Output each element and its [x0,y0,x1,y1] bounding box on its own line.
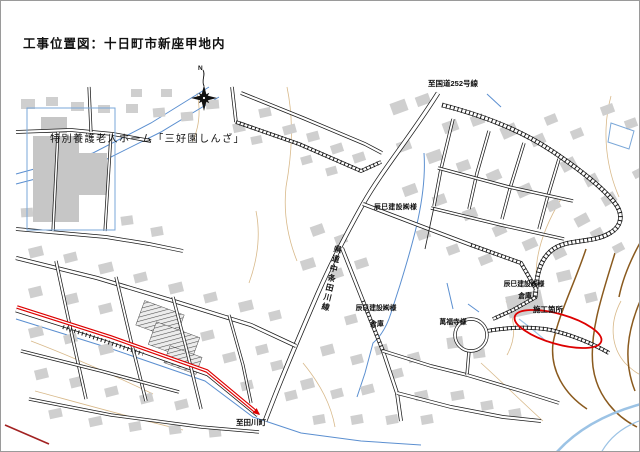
label-construction-site: 施工箇所 [533,304,563,314]
building [352,151,366,163]
building [330,388,344,400]
stream-line [487,94,501,107]
building [450,390,464,401]
road-hatch-ticks [487,328,609,353]
north-label: N [198,65,203,72]
building [268,310,282,322]
building [325,166,338,177]
building [385,414,398,425]
pref-road-char: 線 [321,301,331,313]
building [522,237,539,252]
label-route-252: 至国道252号線 [428,78,479,88]
building [600,103,615,116]
building [330,142,344,154]
building [282,123,297,135]
building [478,253,493,266]
building [556,269,572,282]
building [28,245,44,258]
hatched-buildings [136,301,202,375]
building [168,281,184,294]
stream-line [468,304,479,312]
building [63,252,78,264]
building [310,223,326,237]
road-casing [29,399,259,432]
building [46,97,58,106]
road-casing [442,105,620,298]
building [402,183,419,197]
label-nursing-home: 特別養護老人ホーム「三好園しんざ」 [50,132,245,145]
building [426,149,444,164]
building [98,342,114,355]
compass-center [203,97,205,99]
label-tatsumi-kensetsu: 辰巳建設㈱様 [374,202,417,211]
building [354,257,369,270]
road-hatch-ticks [442,105,620,298]
label-tatsumi-warehouse1-line1: 辰巳建設㈱様 [356,303,397,312]
river-line [556,404,640,452]
label-manpukuji: 萬福寺様 [439,317,466,326]
building [570,127,584,140]
building [320,343,335,356]
label-to-tagawa: 至田川町 [236,418,266,427]
stream-line [447,283,453,309]
building [300,257,316,271]
building [258,107,272,118]
building [350,354,364,366]
building [128,421,141,432]
building [480,400,493,411]
building [573,212,590,227]
building [174,399,189,411]
building [222,352,237,364]
building [250,135,262,145]
road-casing [342,248,401,421]
building [300,155,313,166]
map-canvas: 工事位置図：十日町市新座甲地内 N 至国道252号線 特別養護老人ホーム「三好園… [1,1,640,452]
building [98,261,114,274]
building [255,344,269,356]
building [300,377,315,390]
building [238,299,254,312]
building [312,414,325,425]
building [284,390,298,402]
building [446,243,460,256]
road-fill [502,143,524,219]
label-tatsumi-warehouse2-line1: 辰巳建設㈱様 [504,279,545,288]
building [28,286,43,299]
building [584,292,598,304]
contour-line-dark [592,253,637,427]
building [456,159,472,173]
building [88,416,103,428]
building [360,383,375,395]
north-arrow-tail [203,70,204,86]
building [203,292,218,304]
contour-line [249,211,258,283]
road-fill [467,375,559,403]
label-tatsumi-warehouse2-line2: 倉庫 [517,291,532,300]
building [153,107,166,117]
contour-line-dark [628,299,640,391]
building [344,314,358,326]
document-page: 工事位置図：十日町市新座甲地内 N 至国道252号線 特別養護老人ホーム「三好園… [0,0,640,452]
building [133,272,148,284]
building [131,89,142,97]
road-fill [487,328,609,353]
building [120,215,133,226]
building [98,303,113,315]
building [71,102,84,111]
building [420,414,433,425]
building [181,111,194,121]
building [34,368,49,381]
building [48,408,63,420]
building [150,226,163,237]
dark-red-road [5,425,49,444]
road-casing [487,328,609,353]
building [98,105,110,113]
building [389,99,408,116]
building [350,414,363,425]
building [200,330,215,342]
building [126,104,138,113]
road-fill [442,105,620,298]
building [544,113,558,126]
nursing-home-building [79,153,107,195]
building [632,167,640,179]
building [28,325,44,338]
building [306,131,320,143]
building [104,386,119,398]
page-title: 工事位置図：十日町市新座甲地内 [23,36,226,51]
label-tatsumi-warehouse1-line2: 倉庫 [369,319,384,328]
building [161,89,172,97]
building [612,242,625,254]
building [270,360,284,372]
road-fill [29,399,259,432]
